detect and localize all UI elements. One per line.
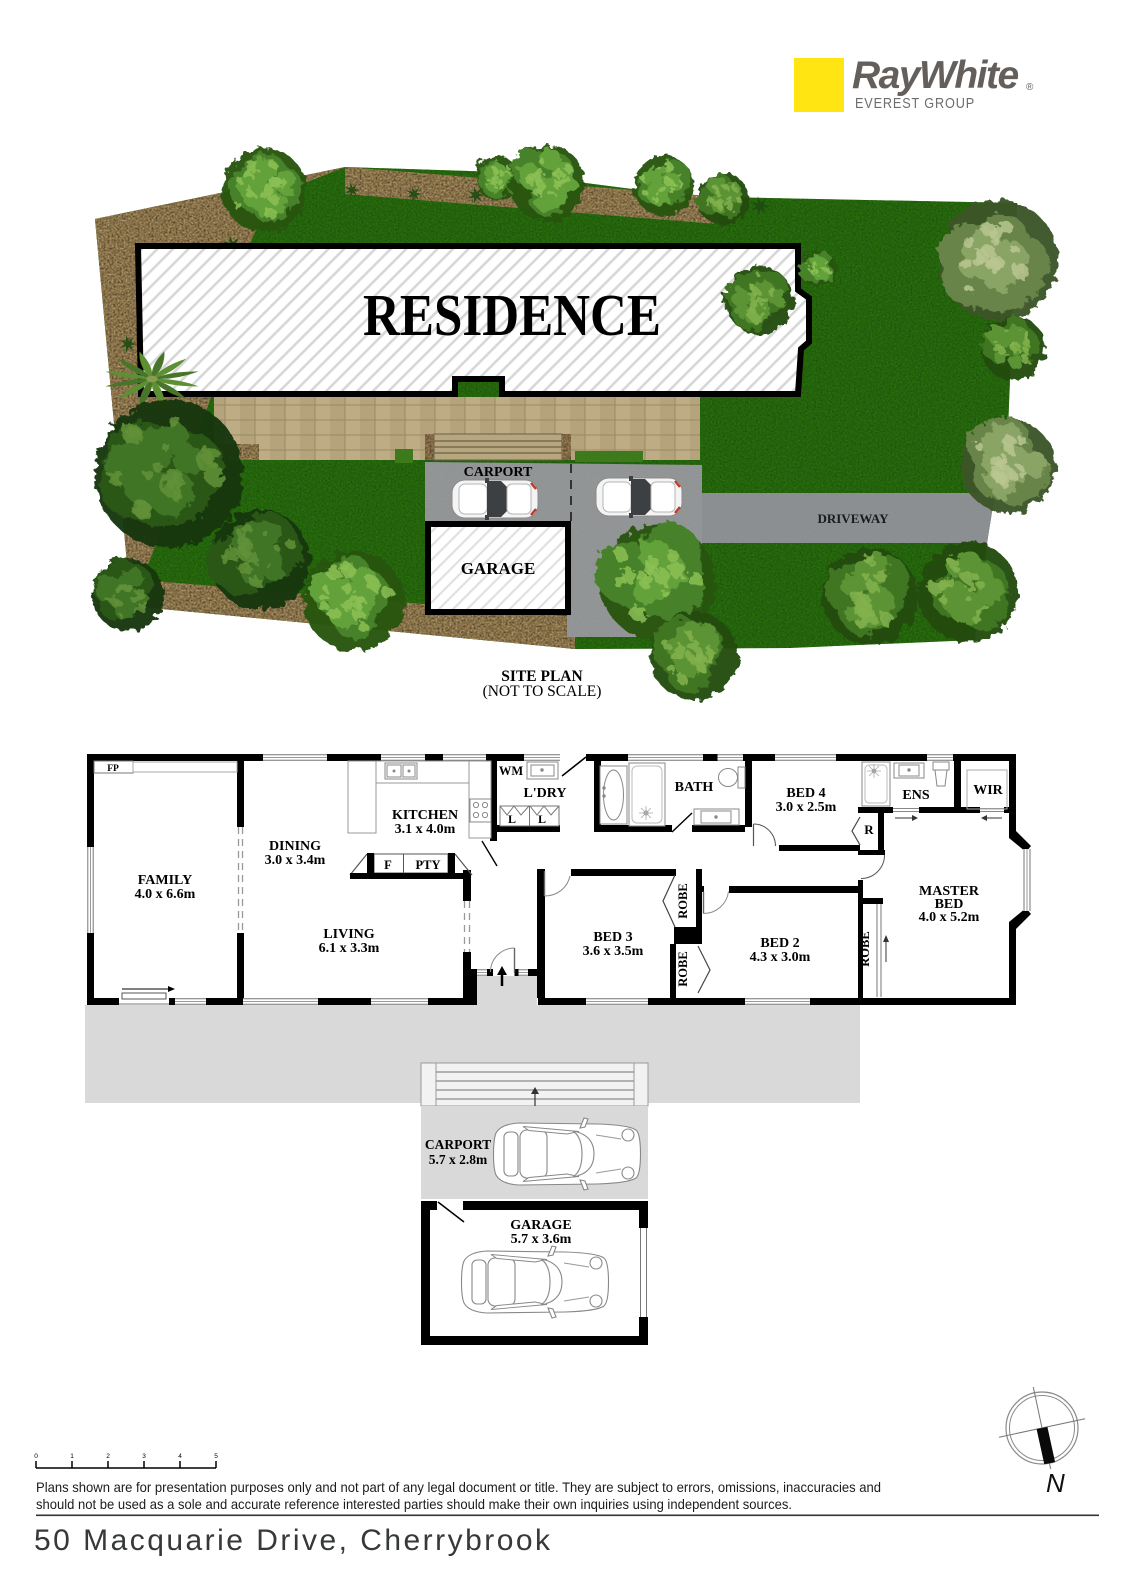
svg-text:3.0 x 3.4m: 3.0 x 3.4m [265,853,326,868]
svg-text:CARPORT: CARPORT [464,465,533,480]
svg-text:RESIDENCE: RESIDENCE [363,282,661,348]
svg-text:3.0 x 2.5m: 3.0 x 2.5m [776,800,837,815]
svg-text:N: N [1046,1468,1065,1498]
svg-text:ENS: ENS [902,788,929,803]
svg-text:KITCHEN: KITCHEN [392,808,458,823]
svg-text:BED 4: BED 4 [786,786,825,801]
svg-text:ROBE: ROBE [676,883,690,918]
svg-text:6.1 x 3.3m: 6.1 x 3.3m [319,941,380,956]
svg-text:2: 2 [106,1453,110,1460]
svg-text:3.1 x 4.0m: 3.1 x 4.0m [395,822,456,837]
svg-text:BED 3: BED 3 [593,930,632,945]
svg-text:®: ® [1026,82,1034,93]
svg-text:L: L [538,812,546,826]
svg-text:FAMILY: FAMILY [138,873,192,888]
svg-text:BED 2: BED 2 [760,936,799,951]
svg-text:RayWhite: RayWhite [852,54,1019,97]
svg-text:WIR: WIR [973,783,1003,798]
svg-text:4: 4 [178,1453,182,1460]
svg-text:CARPORT: CARPORT [425,1137,491,1152]
svg-text:ROBE: ROBE [676,951,690,986]
svg-text:4.0 x 6.6m: 4.0 x 6.6m [135,887,196,902]
svg-text:4.0 x 5.2m: 4.0 x 5.2m [919,910,980,925]
svg-text:GARAGE: GARAGE [461,559,536,578]
svg-text:3: 3 [142,1453,146,1460]
svg-text:GARAGE: GARAGE [510,1218,571,1233]
svg-text:FP: FP [107,764,119,774]
svg-text:5: 5 [214,1453,218,1460]
svg-text:R: R [864,822,874,837]
svg-text:1: 1 [70,1453,74,1460]
svg-text:4.3 x 3.0m: 4.3 x 3.0m [750,950,811,965]
svg-text:F: F [384,858,392,872]
svg-text:Plans shown are for presentati: Plans shown are for presentation purpose… [36,1480,881,1495]
svg-text:L'DRY: L'DRY [523,786,566,801]
svg-text:5.7 x 3.6m: 5.7 x 3.6m [511,1232,572,1247]
svg-text:WM: WM [499,764,524,778]
svg-text:EVEREST GROUP: EVEREST GROUP [855,95,975,112]
svg-text:0: 0 [34,1453,38,1460]
svg-text:LIVING: LIVING [323,927,374,942]
svg-text:5.7 x 2.8m: 5.7 x 2.8m [429,1152,488,1167]
svg-text:PTY: PTY [416,858,441,872]
svg-text:DRIVEWAY: DRIVEWAY [817,511,889,526]
svg-text:L: L [508,812,516,826]
svg-text:(NOT TO SCALE): (NOT TO SCALE) [483,683,602,700]
svg-text:ROBE: ROBE [858,931,872,966]
svg-text:50 Macquarie Drive, Cherrybroo: 50 Macquarie Drive, Cherrybrook [34,1524,551,1557]
svg-text:DINING: DINING [269,839,321,854]
svg-text:should not be used as a sole a: should not be used as a sole and accurat… [36,1497,792,1512]
svg-text:BATH: BATH [675,780,714,795]
svg-text:3.6 x 3.5m: 3.6 x 3.5m [583,944,644,959]
